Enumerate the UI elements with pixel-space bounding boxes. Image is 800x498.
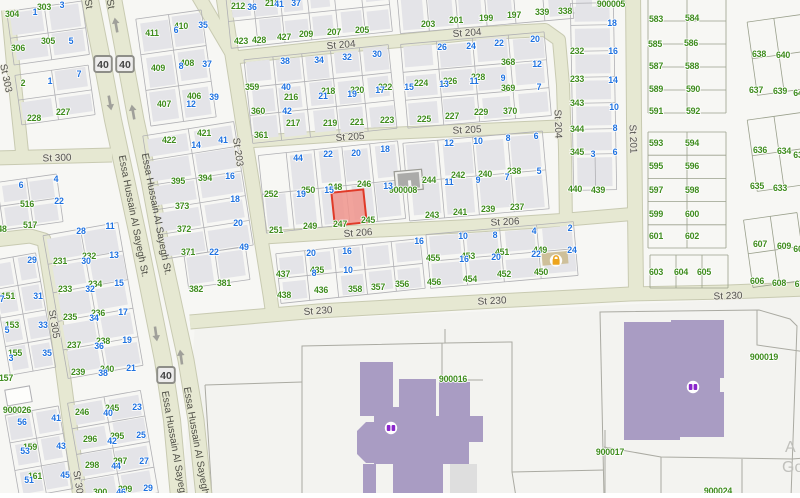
svg-text:608: 608 [772, 278, 786, 288]
svg-text:237: 237 [510, 202, 524, 212]
svg-text:8: 8 [506, 133, 511, 143]
svg-text:900019: 900019 [750, 352, 778, 362]
svg-text:16: 16 [414, 236, 424, 246]
svg-text:48: 48 [0, 224, 7, 234]
svg-text:40: 40 [103, 408, 113, 418]
svg-text:600: 600 [685, 209, 699, 219]
svg-text:199: 199 [479, 13, 493, 23]
svg-text:454: 454 [463, 274, 477, 284]
svg-text:591: 591 [649, 106, 663, 116]
svg-text:11: 11 [470, 76, 479, 86]
svg-text:32: 32 [342, 52, 352, 62]
svg-text:42: 42 [282, 106, 292, 116]
svg-text:603: 603 [649, 267, 663, 277]
svg-text:209: 209 [299, 29, 313, 39]
svg-text:358: 358 [348, 284, 362, 294]
svg-text:300: 300 [93, 487, 107, 493]
svg-text:63: 63 [793, 150, 800, 160]
svg-text:201: 201 [449, 15, 463, 25]
svg-text:583: 583 [649, 14, 663, 24]
svg-text:640: 640 [776, 50, 790, 60]
svg-text:231: 231 [53, 256, 67, 266]
svg-text:450: 450 [534, 267, 548, 277]
svg-text:243: 243 [425, 210, 439, 220]
svg-text:373: 373 [175, 201, 189, 211]
svg-text:20: 20 [351, 148, 361, 158]
svg-text:St 230: St 230 [303, 305, 333, 318]
svg-text:6: 6 [534, 131, 539, 141]
svg-text:3: 3 [9, 353, 14, 363]
svg-text:601: 601 [649, 231, 663, 241]
svg-text:46: 46 [116, 487, 126, 493]
svg-text:411: 411 [145, 28, 159, 38]
svg-text:37: 37 [202, 59, 212, 69]
svg-text:39: 39 [209, 92, 219, 102]
svg-text:602: 602 [685, 231, 699, 241]
svg-text:633: 633 [773, 183, 787, 193]
svg-text:3: 3 [591, 149, 596, 159]
svg-text:452: 452 [497, 269, 511, 279]
svg-text:14: 14 [191, 140, 201, 150]
svg-text:371: 371 [181, 247, 195, 257]
svg-text:197: 197 [507, 10, 521, 20]
svg-text:43: 43 [56, 441, 66, 451]
svg-text:900016: 900016 [439, 374, 467, 384]
svg-text:5: 5 [537, 166, 542, 176]
svg-text:900017: 900017 [596, 447, 624, 457]
svg-text:595: 595 [649, 161, 663, 171]
svg-text:2: 2 [568, 223, 573, 233]
svg-text:217: 217 [286, 118, 300, 128]
svg-text:221: 221 [350, 117, 364, 127]
svg-text:14: 14 [608, 75, 618, 85]
svg-text:427: 427 [277, 32, 291, 42]
svg-text:16: 16 [342, 246, 352, 256]
svg-text:440: 440 [568, 184, 582, 194]
svg-text:639: 639 [773, 86, 787, 96]
svg-text:900008: 900008 [389, 185, 417, 195]
svg-text:3: 3 [60, 0, 65, 10]
svg-text:233: 233 [570, 74, 584, 84]
svg-text:223: 223 [380, 115, 394, 125]
svg-text:359: 359 [245, 82, 259, 92]
svg-text:27: 27 [139, 456, 149, 466]
svg-text:64: 64 [793, 88, 800, 98]
svg-text:345: 345 [570, 147, 584, 157]
svg-text:228: 228 [27, 113, 41, 123]
svg-text:369: 369 [501, 83, 515, 93]
svg-text:34: 34 [89, 313, 99, 323]
svg-text:25: 25 [136, 430, 146, 440]
svg-text:35: 35 [42, 348, 52, 358]
svg-text:1: 1 [33, 7, 38, 17]
svg-text:41: 41 [218, 135, 228, 145]
svg-text:37: 37 [291, 0, 301, 8]
svg-text:4: 4 [532, 226, 537, 236]
svg-text:6: 6 [174, 25, 179, 35]
svg-text:18: 18 [607, 18, 617, 28]
svg-text:33: 33 [38, 320, 48, 330]
svg-text:409: 409 [151, 63, 165, 73]
svg-text:26: 26 [437, 42, 447, 52]
svg-text:343: 343 [570, 98, 584, 108]
svg-text:35: 35 [198, 20, 208, 30]
svg-text:638: 638 [752, 49, 766, 59]
svg-text:16: 16 [225, 171, 235, 181]
svg-text:24: 24 [466, 41, 476, 51]
svg-text:516: 516 [20, 199, 34, 209]
svg-text:44: 44 [111, 461, 121, 471]
svg-text:St 205: St 205 [452, 124, 482, 137]
svg-text:60: 60 [793, 244, 800, 254]
svg-text:634: 634 [777, 146, 791, 156]
svg-text:590: 590 [686, 84, 700, 94]
svg-text:394: 394 [198, 173, 212, 183]
svg-text:22: 22 [323, 149, 333, 159]
svg-text:44: 44 [293, 153, 303, 163]
svg-text:249: 249 [303, 221, 317, 231]
svg-text:18: 18 [230, 194, 240, 204]
svg-text:20: 20 [530, 34, 540, 44]
svg-text:28: 28 [76, 226, 86, 236]
svg-text:9: 9 [476, 175, 481, 185]
svg-text:605: 605 [697, 267, 711, 277]
svg-text:53: 53 [20, 446, 30, 456]
svg-text:St 204: St 204 [551, 109, 563, 139]
svg-text:587: 587 [649, 61, 663, 71]
svg-text:40: 40 [119, 59, 131, 71]
svg-text:St 300: St 300 [42, 152, 72, 164]
svg-text:21: 21 [318, 91, 328, 101]
svg-text:421: 421 [197, 128, 211, 138]
svg-text:344: 344 [570, 124, 584, 134]
svg-text:16: 16 [608, 46, 618, 56]
svg-text:594: 594 [685, 138, 699, 148]
svg-text:900024: 900024 [704, 486, 732, 493]
svg-text:305: 305 [41, 36, 55, 46]
svg-text:233: 233 [58, 284, 72, 294]
svg-text:584: 584 [685, 13, 699, 23]
svg-text:29: 29 [143, 483, 153, 493]
svg-text:17: 17 [375, 85, 385, 95]
svg-text:Go: Go [782, 459, 800, 476]
svg-text:6: 6 [795, 279, 800, 289]
svg-text:13: 13 [439, 79, 449, 89]
svg-text:7: 7 [537, 82, 542, 92]
svg-text:224: 224 [414, 78, 428, 88]
svg-text:361: 361 [254, 130, 268, 140]
svg-text:41: 41 [274, 0, 284, 9]
svg-text:609: 609 [777, 241, 791, 251]
svg-text:606: 606 [750, 276, 764, 286]
svg-text:207: 207 [327, 27, 341, 37]
svg-text:St 205: St 205 [335, 131, 365, 144]
svg-text:303: 303 [37, 2, 51, 12]
svg-text:232: 232 [570, 46, 584, 56]
svg-text:225: 225 [417, 114, 431, 124]
svg-text:40: 40 [97, 59, 109, 71]
svg-text:24: 24 [567, 245, 577, 255]
svg-text:19: 19 [122, 335, 132, 345]
svg-text:381: 381 [217, 278, 231, 288]
svg-text:338: 338 [558, 6, 572, 16]
svg-text:6: 6 [613, 147, 618, 157]
svg-text:636: 636 [753, 145, 767, 155]
svg-text:23: 23 [132, 402, 142, 412]
svg-text:637: 637 [749, 85, 763, 95]
svg-text:36: 36 [94, 341, 104, 351]
svg-text:597: 597 [649, 185, 663, 195]
svg-text:372: 372 [177, 224, 191, 234]
svg-text:10: 10 [343, 265, 353, 275]
svg-text:9: 9 [501, 73, 506, 83]
svg-text:8: 8 [613, 123, 618, 133]
svg-text:370: 370 [503, 106, 517, 116]
svg-text:31: 31 [33, 291, 43, 301]
svg-text:585: 585 [648, 39, 662, 49]
svg-text:20: 20 [306, 248, 316, 258]
svg-text:251: 251 [269, 225, 283, 235]
svg-text:St 230: St 230 [477, 295, 507, 308]
svg-text:2: 2 [21, 78, 26, 88]
svg-text:423: 423 [234, 36, 248, 46]
svg-text:41: 41 [51, 413, 61, 423]
svg-text:11: 11 [445, 177, 454, 187]
svg-text:241: 241 [453, 207, 467, 217]
svg-text:12: 12 [186, 99, 196, 109]
svg-text:296: 296 [83, 434, 97, 444]
svg-text:635: 635 [750, 181, 764, 191]
svg-text:456: 456 [427, 277, 441, 287]
svg-text:22: 22 [209, 247, 219, 257]
svg-text:598: 598 [685, 185, 699, 195]
svg-text:382: 382 [189, 284, 203, 294]
svg-text:A: A [785, 439, 796, 456]
svg-text:304: 304 [5, 9, 19, 19]
svg-text:St 206: St 206 [490, 216, 520, 229]
svg-text:589: 589 [649, 84, 663, 94]
svg-text:235: 235 [63, 312, 77, 322]
svg-text:56: 56 [17, 417, 27, 427]
svg-text:229: 229 [474, 107, 488, 117]
svg-text:11: 11 [106, 221, 115, 231]
svg-text:38: 38 [98, 368, 108, 378]
svg-text:22: 22 [54, 196, 64, 206]
svg-text:438: 438 [277, 290, 291, 300]
svg-text:252: 252 [264, 189, 278, 199]
svg-text:437: 437 [276, 269, 290, 279]
svg-text:604: 604 [674, 267, 688, 277]
svg-text:428: 428 [252, 35, 266, 45]
svg-text:900026: 900026 [3, 405, 31, 415]
svg-text:20: 20 [233, 218, 243, 228]
svg-text:40: 40 [281, 82, 291, 92]
svg-text:45: 45 [60, 470, 70, 480]
svg-text:15: 15 [324, 185, 334, 195]
svg-text:12: 12 [444, 138, 454, 148]
svg-text:407: 407 [157, 99, 171, 109]
svg-text:5: 5 [69, 36, 74, 46]
svg-text:900005: 900005 [597, 0, 625, 9]
svg-text:17: 17 [118, 307, 128, 317]
svg-text:8: 8 [312, 268, 317, 278]
svg-text:8: 8 [179, 61, 184, 71]
svg-text:22: 22 [531, 249, 541, 259]
svg-text:592: 592 [686, 106, 700, 116]
svg-text:51: 51 [24, 475, 34, 485]
svg-text:439: 439 [591, 185, 605, 195]
svg-text:239: 239 [71, 367, 85, 377]
svg-text:St 201: St 201 [626, 124, 638, 154]
svg-text:246: 246 [357, 179, 371, 189]
svg-text:599: 599 [649, 209, 663, 219]
svg-text:St 204: St 204 [452, 27, 482, 40]
svg-text:10: 10 [458, 231, 468, 241]
svg-text:8: 8 [493, 230, 498, 240]
svg-text:227: 227 [445, 111, 459, 121]
svg-text:357: 357 [371, 282, 385, 292]
svg-text:49: 49 [239, 242, 249, 252]
svg-text:212: 212 [231, 1, 245, 11]
svg-text:422: 422 [162, 135, 176, 145]
svg-text:247: 247 [333, 219, 347, 229]
svg-text:4: 4 [54, 174, 59, 184]
svg-text:40: 40 [160, 370, 172, 382]
svg-text:19: 19 [296, 189, 306, 199]
svg-text:30: 30 [81, 256, 91, 266]
svg-text:13: 13 [383, 181, 393, 191]
svg-text:7: 7 [77, 69, 82, 79]
svg-text:368: 368 [501, 57, 515, 67]
svg-text:29: 29 [27, 255, 37, 265]
svg-text:St 230: St 230 [713, 290, 743, 302]
svg-text:455: 455 [426, 253, 440, 263]
svg-text:395: 395 [171, 176, 185, 186]
svg-text:157: 157 [0, 373, 13, 383]
svg-text:596: 596 [685, 161, 699, 171]
svg-text:203: 203 [421, 19, 435, 29]
svg-text:5: 5 [5, 325, 10, 335]
svg-text:15: 15 [114, 278, 124, 288]
svg-text:20: 20 [491, 252, 501, 262]
svg-text:216: 216 [284, 92, 298, 102]
svg-text:237: 237 [67, 340, 81, 350]
svg-text:18: 18 [380, 144, 390, 154]
svg-text:16: 16 [459, 254, 469, 264]
svg-text:42: 42 [107, 436, 117, 446]
svg-text:586: 586 [684, 38, 698, 48]
svg-text:607: 607 [753, 239, 767, 249]
svg-text:7: 7 [0, 294, 5, 304]
svg-text:38: 38 [280, 56, 290, 66]
svg-text:588: 588 [685, 61, 699, 71]
svg-text:St 206: St 206 [343, 227, 373, 240]
svg-text:360: 360 [251, 106, 265, 116]
svg-text:246: 246 [75, 407, 89, 417]
svg-text:32: 32 [85, 284, 95, 294]
svg-text:22: 22 [494, 38, 504, 48]
svg-text:34: 34 [314, 55, 324, 65]
svg-text:436: 436 [314, 285, 328, 295]
svg-text:21: 21 [126, 363, 136, 373]
svg-text:244: 244 [422, 175, 436, 185]
svg-text:12: 12 [532, 59, 542, 69]
svg-text:306: 306 [11, 43, 25, 53]
svg-text:219: 219 [323, 118, 337, 128]
svg-text:1: 1 [48, 76, 53, 86]
svg-text:7: 7 [505, 172, 510, 182]
svg-text:227: 227 [56, 107, 70, 117]
svg-text:339: 339 [535, 7, 549, 17]
svg-text:298: 298 [85, 460, 99, 470]
svg-text:517: 517 [23, 220, 37, 230]
svg-text:239: 239 [481, 204, 495, 214]
svg-text:13: 13 [109, 250, 119, 260]
svg-text:10: 10 [473, 136, 483, 146]
svg-text:15: 15 [404, 82, 414, 92]
svg-text:10: 10 [609, 102, 619, 112]
svg-text:593: 593 [649, 138, 663, 148]
svg-text:30: 30 [372, 49, 382, 59]
svg-text:36: 36 [247, 2, 257, 12]
svg-text:245: 245 [361, 215, 375, 225]
svg-text:356: 356 [395, 279, 409, 289]
svg-text:205: 205 [355, 25, 369, 35]
svg-text:6: 6 [19, 180, 24, 190]
svg-text:19: 19 [347, 89, 357, 99]
